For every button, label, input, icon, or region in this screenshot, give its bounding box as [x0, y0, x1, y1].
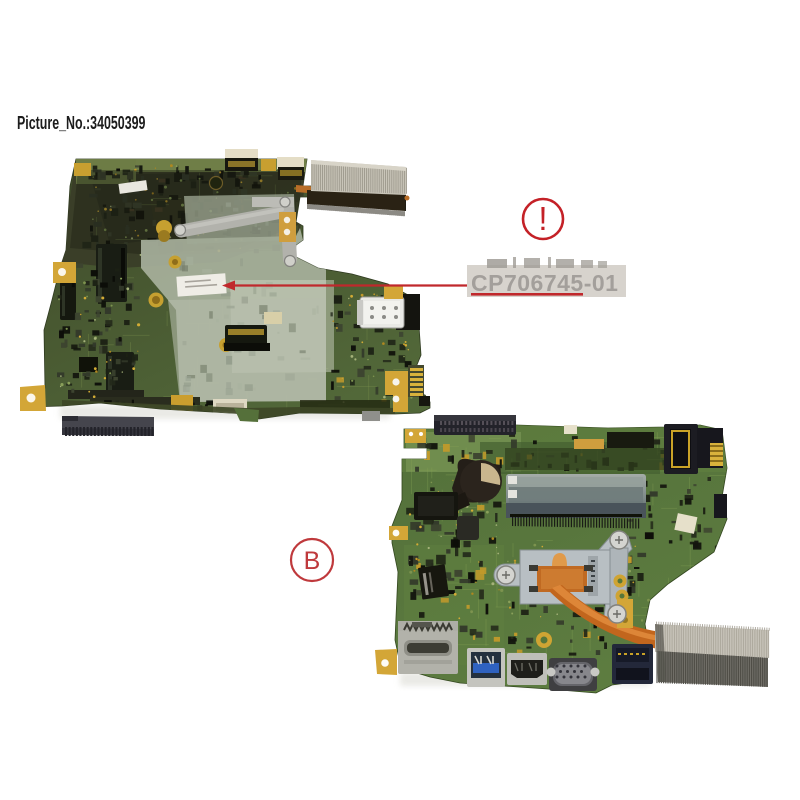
svg-text:CP706745-01: CP706745-01 — [471, 270, 618, 296]
svg-text:B: B — [304, 547, 321, 575]
svg-text:!: ! — [538, 200, 547, 237]
